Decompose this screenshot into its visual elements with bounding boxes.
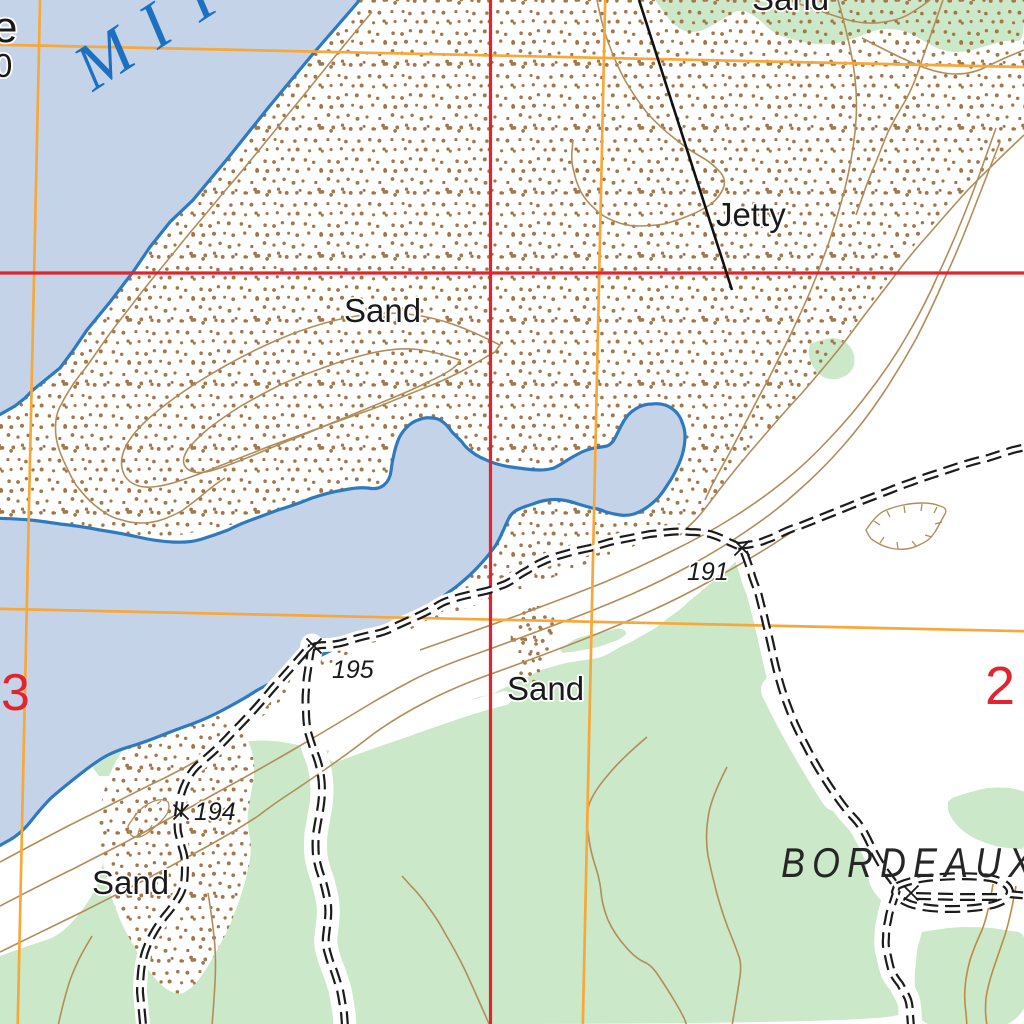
- svg-text:3: 3: [1, 664, 30, 722]
- svg-text:Jetty: Jetty: [716, 196, 786, 233]
- svg-text:Sand: Sand: [344, 292, 421, 329]
- svg-text:195: 195: [332, 656, 374, 684]
- svg-text:191: 191: [687, 558, 729, 586]
- svg-text:0: 0: [0, 47, 12, 84]
- svg-text:Sand: Sand: [92, 864, 169, 901]
- svg-text:e: e: [0, 3, 17, 52]
- svg-text:2: 2: [985, 656, 1015, 716]
- svg-text:Sand: Sand: [752, 0, 829, 17]
- svg-text:Sand: Sand: [507, 670, 584, 707]
- svg-text:BORDEAUX: BORDEAUX: [781, 840, 1024, 886]
- svg-text:194: 194: [194, 798, 236, 826]
